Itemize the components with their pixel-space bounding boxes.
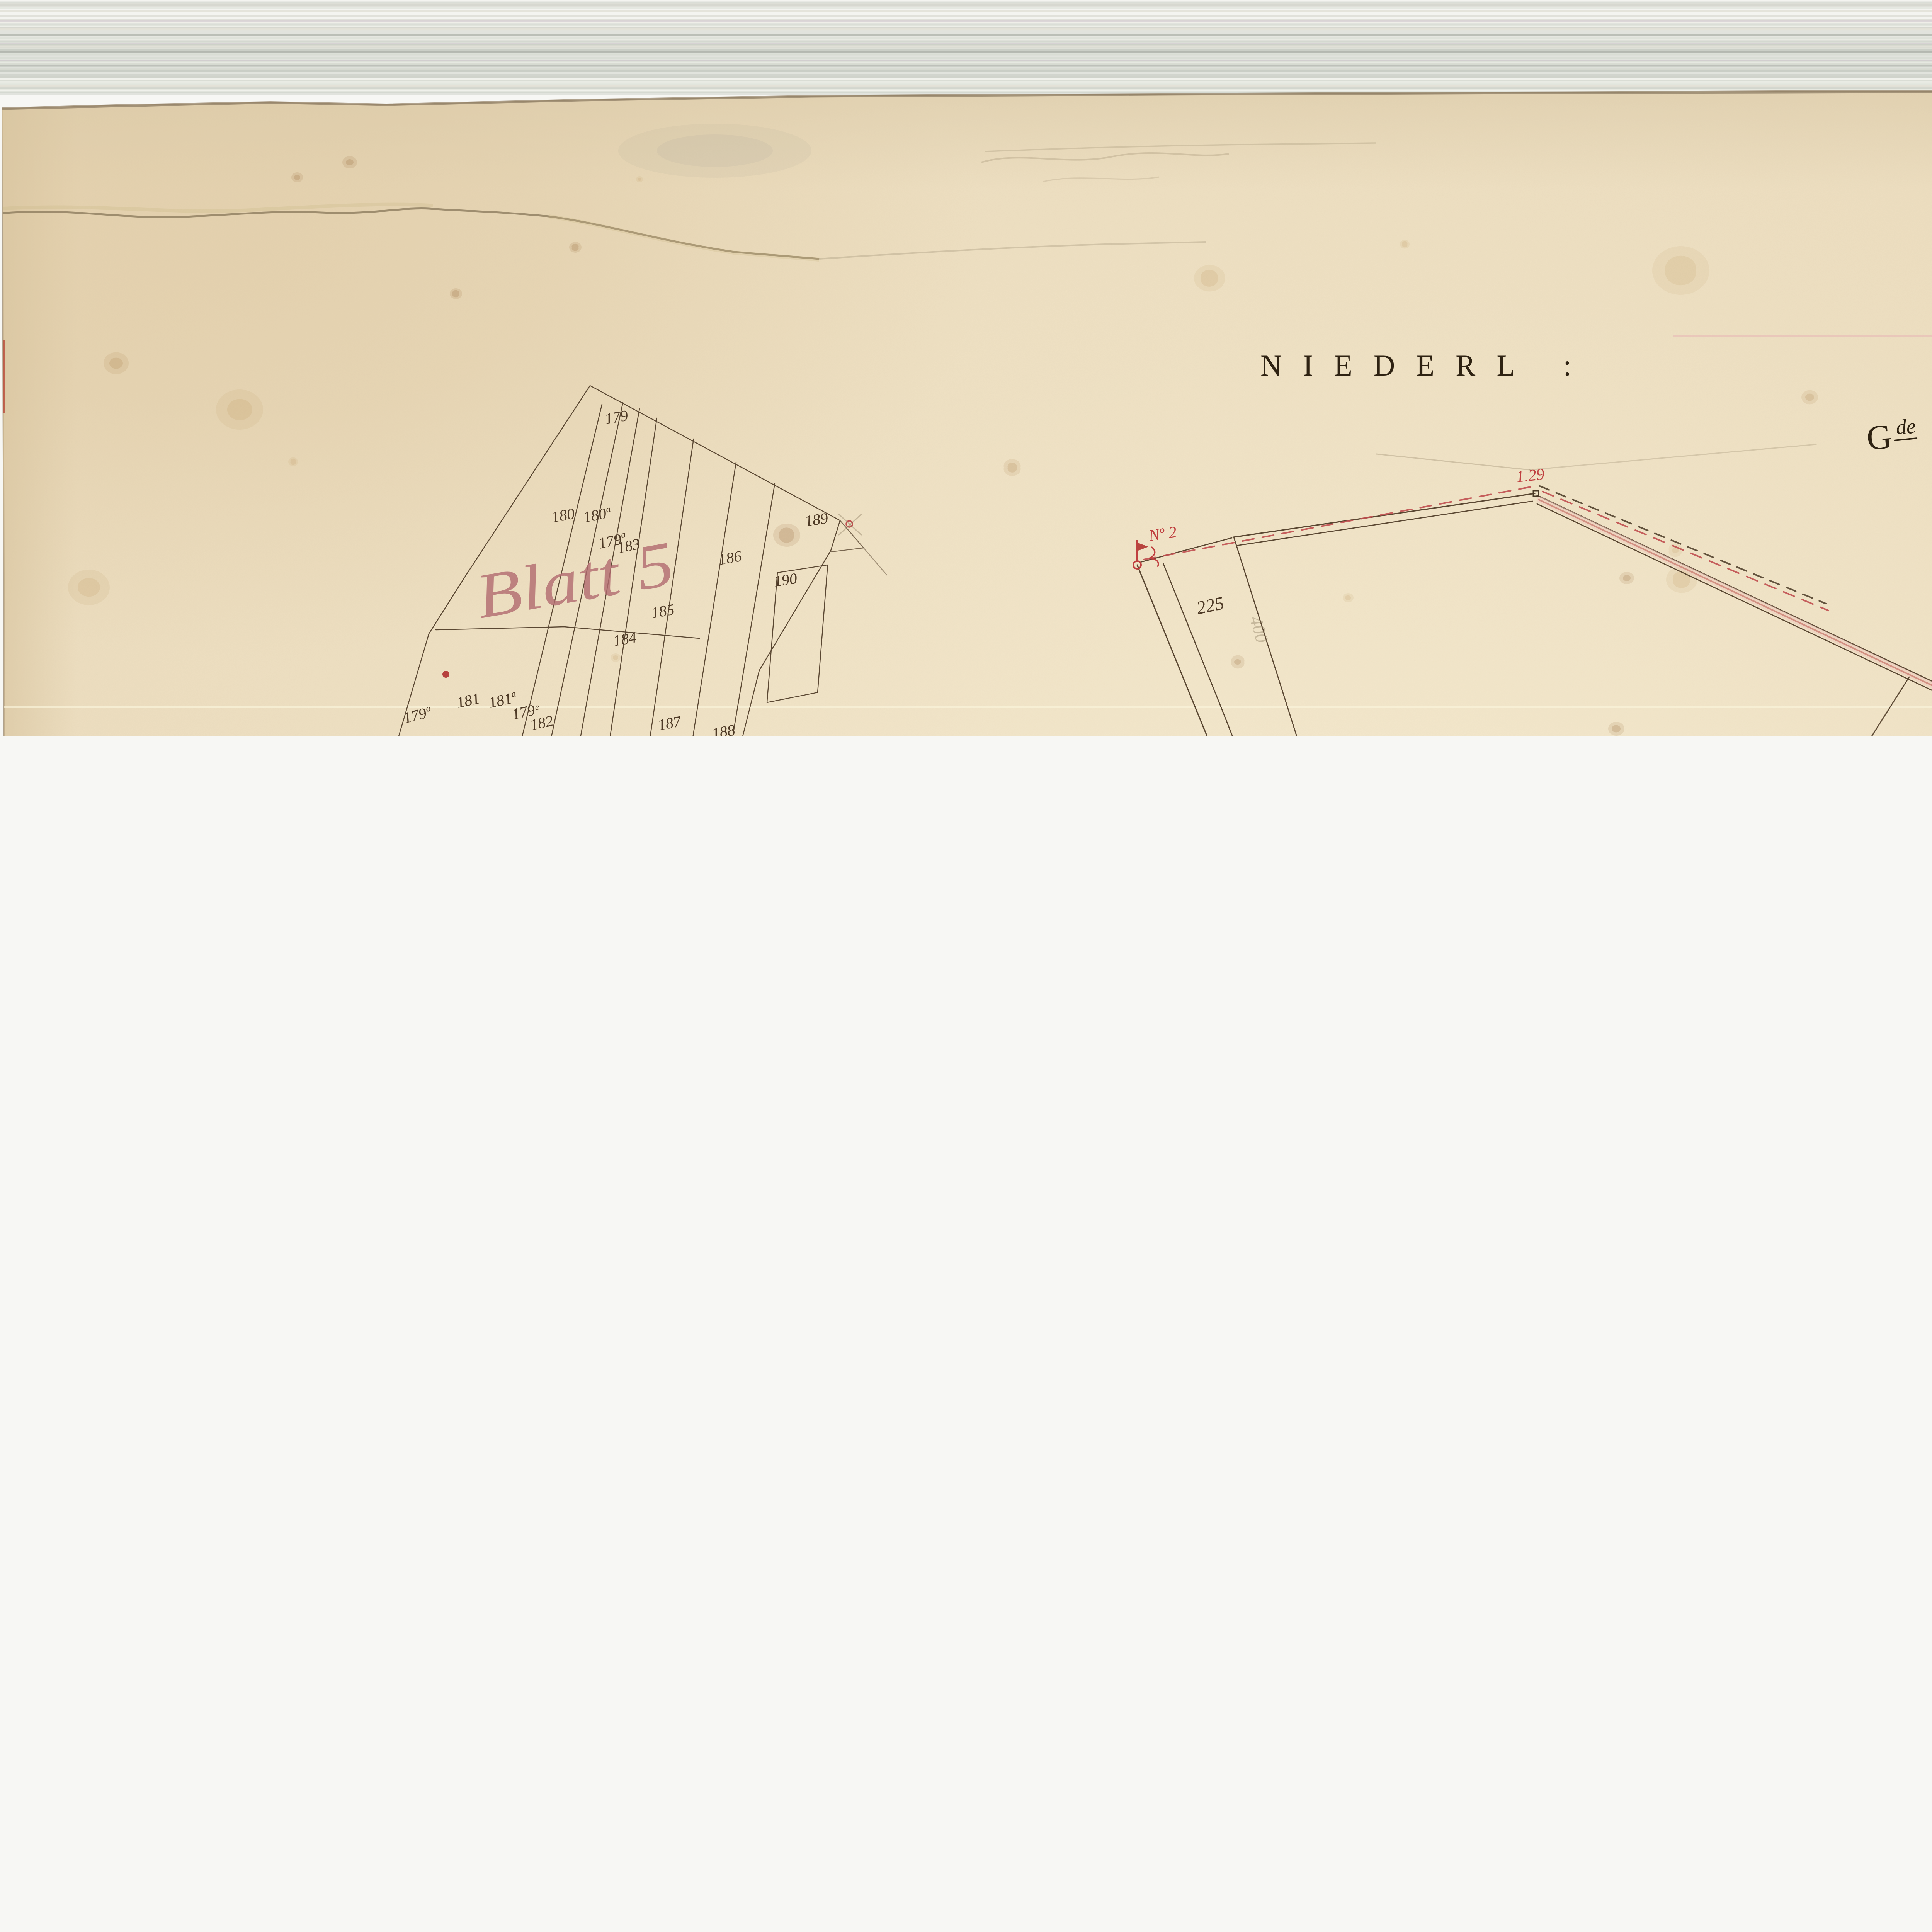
svg-text:65: 65 xyxy=(747,1782,767,1804)
svg-text:153: 153 xyxy=(1399,1846,1428,1869)
svg-text:147: 147 xyxy=(1272,1779,1302,1802)
svg-text:G: G xyxy=(1865,418,1893,457)
svg-text:157: 157 xyxy=(1571,1713,1601,1736)
svg-text:II: II xyxy=(432,909,462,951)
svg-text:145: 145 xyxy=(1218,1607,1247,1631)
svg-text:1.29: 1.29 xyxy=(1515,466,1545,486)
svg-text:68: 68 xyxy=(777,1653,797,1675)
svg-text:189: 189 xyxy=(804,509,829,530)
svg-text:Blatt . 5.: Blatt . 5. xyxy=(1311,1712,1486,1783)
svg-text:146: 146 xyxy=(1229,1799,1258,1822)
svg-text:149: 149 xyxy=(1322,1690,1351,1713)
svg-text:Fr: Fr xyxy=(361,910,398,954)
svg-text:148: 148 xyxy=(1270,1617,1299,1640)
svg-text:Groſs: Groſs xyxy=(501,902,600,948)
svg-text:70: 70 xyxy=(796,1540,816,1562)
svg-text:69: 69 xyxy=(851,1548,871,1570)
svg-text:66: 66 xyxy=(758,1736,778,1758)
svg-text:190: 190 xyxy=(773,570,798,590)
svg-text:195: 195 xyxy=(754,1194,784,1218)
svg-text:NIEDERL :: NIEDERL : xyxy=(1260,349,1593,382)
svg-text:226: 226 xyxy=(1621,923,1651,947)
svg-text:de: de xyxy=(1895,415,1917,439)
